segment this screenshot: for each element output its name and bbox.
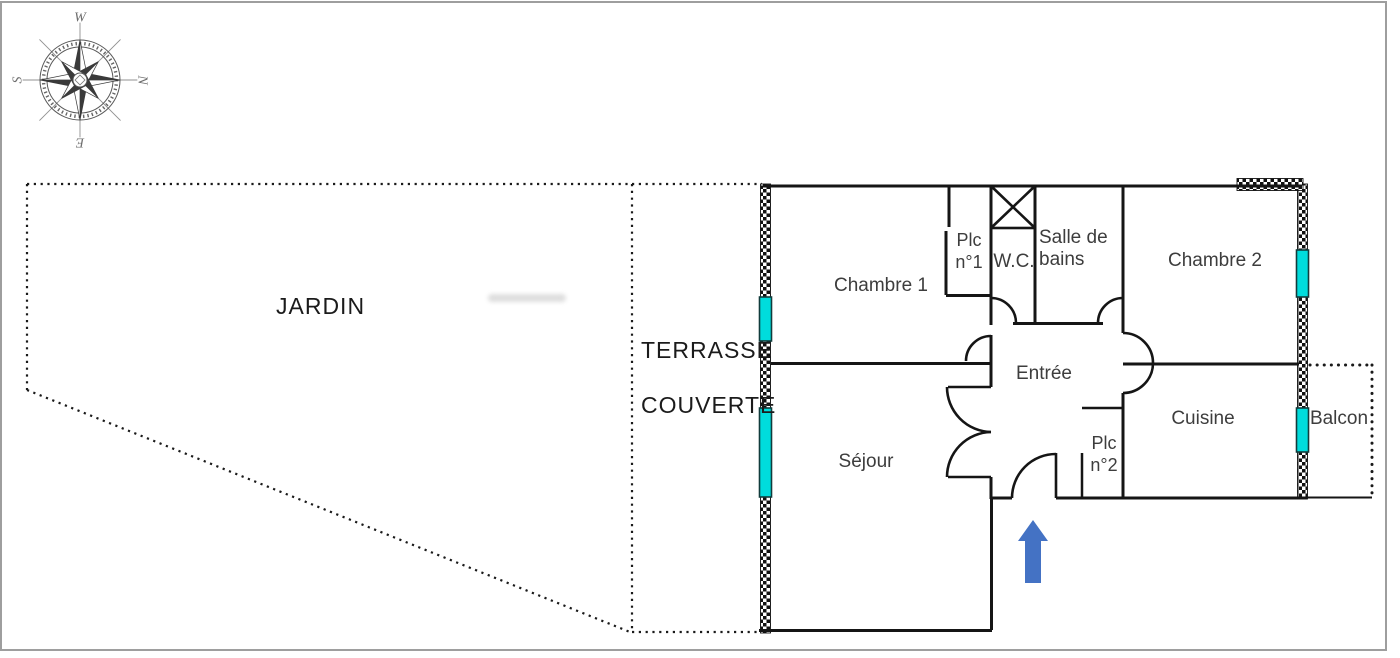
room-label-sejour: Séjour <box>839 451 894 473</box>
shaft-box <box>991 186 1035 228</box>
room-label-plc2: Plcn°2 <box>1090 433 1117 477</box>
terrasse-label-line2: COUVERTE <box>641 392 776 419</box>
room-label-chambre2: Chambre 2 <box>1168 250 1262 272</box>
room-label-cuisine: Cuisine <box>1171 408 1234 430</box>
room-label-plc1: Plcn°1 <box>955 230 982 274</box>
compass-label-s: S <box>11 77 26 84</box>
compass-label-n: N <box>135 74 150 85</box>
smudge-artifact <box>488 294 566 302</box>
room-label-wc: W.C. <box>993 251 1034 273</box>
room-label-chambre1: Chambre 1 <box>834 275 928 297</box>
compass-label-w: W <box>74 11 87 26</box>
room-label-salle-de-bains: Salle debains <box>1039 227 1108 272</box>
room-label-balcon: Balcon <box>1310 408 1368 430</box>
terrasse-label-line1: TERRASSE <box>641 337 773 364</box>
compass-label-e: E <box>75 135 85 150</box>
jardin-outline <box>27 184 632 632</box>
floor-plan: W N E S <box>0 0 1400 658</box>
room-label-entree: Entrée <box>1016 363 1072 385</box>
image-frame <box>1 2 1386 650</box>
window-chambre2 <box>1297 250 1309 297</box>
floor-plan-canvas: W N E S <box>0 0 1400 658</box>
window-sejour <box>760 408 772 497</box>
window-chambre1 <box>760 297 772 341</box>
jardin-area-label: JARDIN <box>276 293 365 320</box>
compass-rose-icon: W N E S <box>11 11 150 150</box>
entrance-arrow-icon <box>1018 520 1048 583</box>
balcon-outline <box>1310 365 1372 497</box>
window-cuisine <box>1297 408 1309 452</box>
